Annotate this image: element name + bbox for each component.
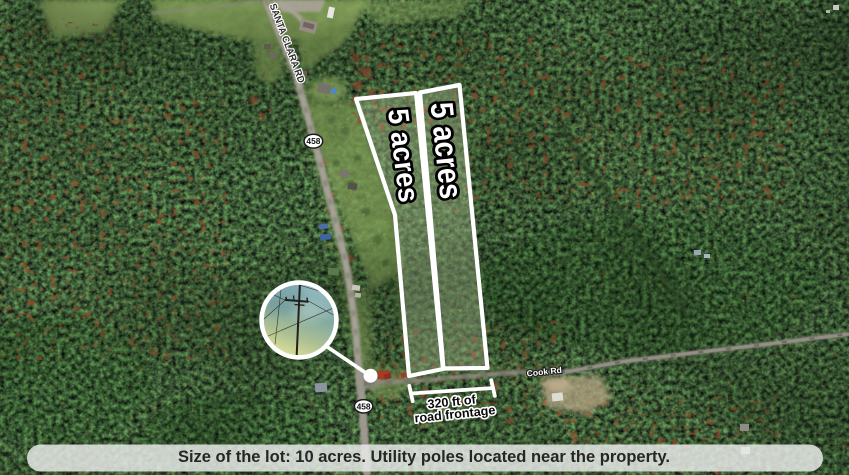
svg-text:458: 458 xyxy=(357,401,371,411)
svg-text:458: 458 xyxy=(306,136,320,146)
svg-text:Size of the lot: 10 acres. Uti: Size of the lot: 10 acres. Utility poles… xyxy=(178,448,670,466)
